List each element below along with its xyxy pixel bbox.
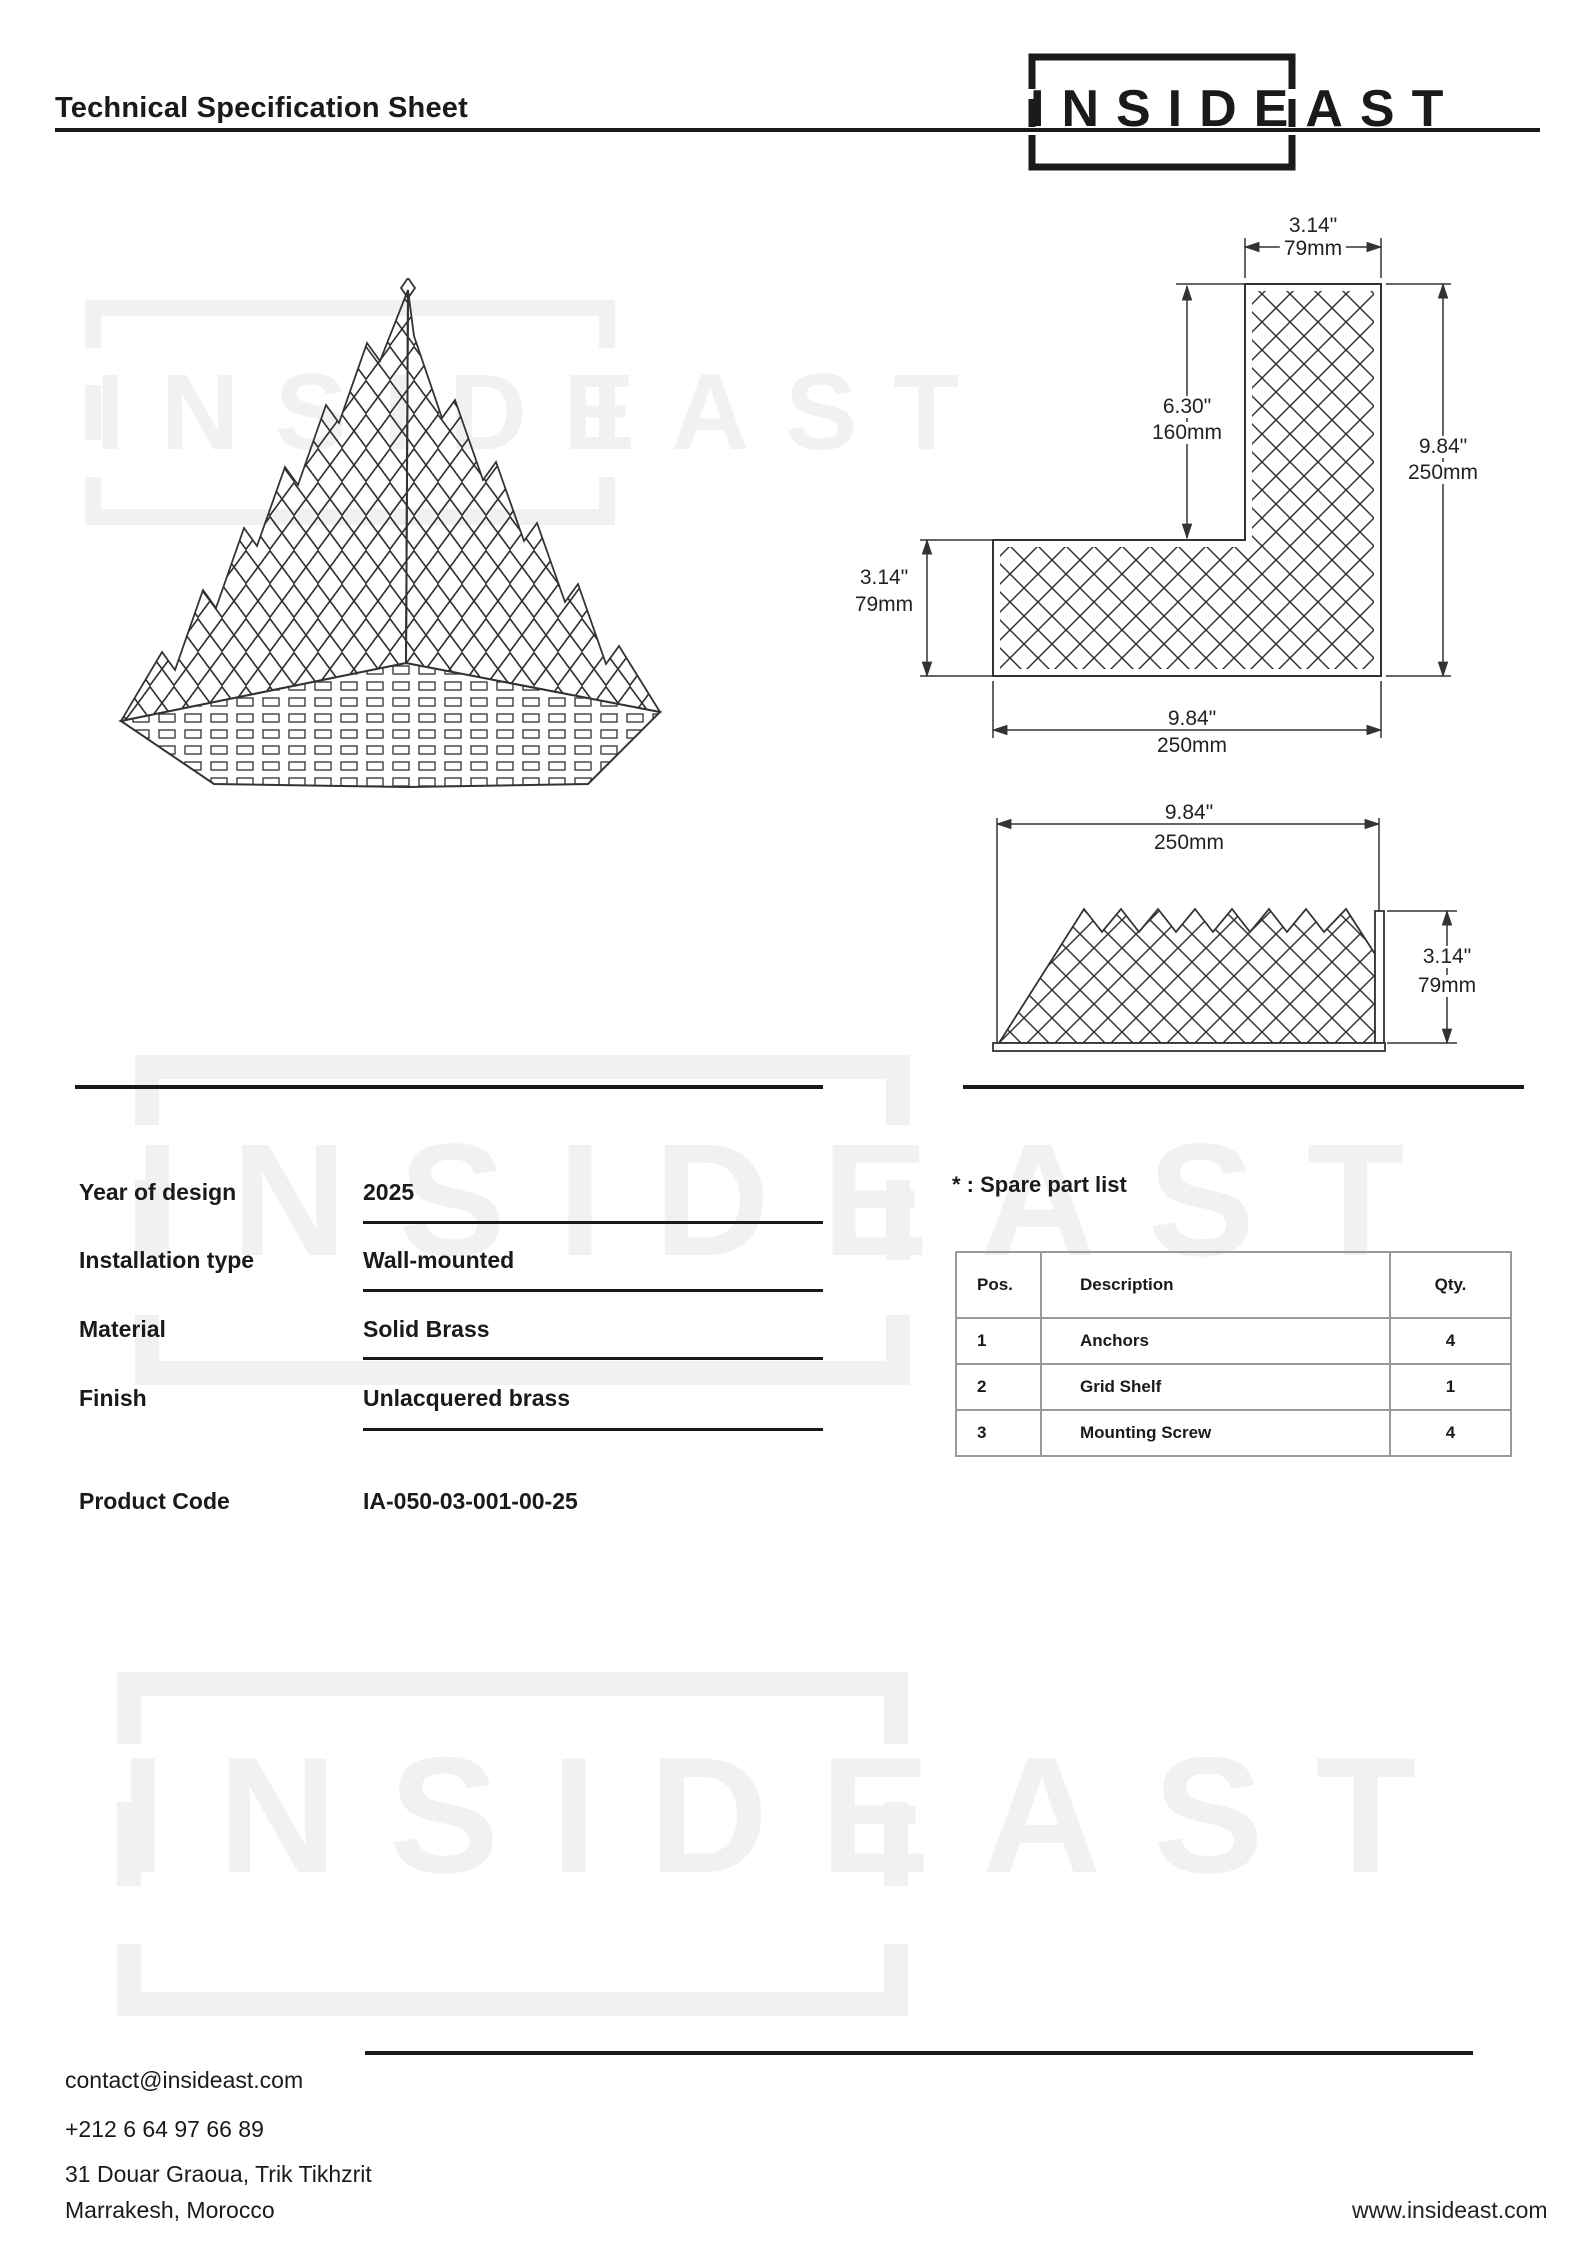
isometric-view-drawing — [78, 278, 688, 793]
spec-section-rule-left — [75, 1085, 823, 1089]
table-cell: Anchors — [1042, 1319, 1391, 1365]
col-header-desc: Description — [1042, 1253, 1391, 1319]
website-url: www.insideast.com — [1352, 2197, 1548, 2224]
dim-label-arm-width-in: 3.14" — [1289, 215, 1337, 237]
spec-label: Year of design — [79, 1179, 236, 1206]
dim-label-arm-height-in: 3.14" — [860, 567, 908, 589]
dim-label-front-width-in: 9.84" — [1165, 802, 1213, 824]
spare-parts-heading: * : Spare part list — [952, 1172, 1127, 1198]
address-line-2: Marrakesh, Morocco — [65, 2197, 275, 2224]
footer-rule — [365, 2051, 1473, 2055]
spec-section-rule-right — [963, 1085, 1524, 1089]
col-header-pos: Pos. — [957, 1253, 1042, 1319]
watermark-text: INSIDEAST — [120, 1733, 1468, 1898]
table-cell: 4 — [1391, 1319, 1510, 1365]
spec-label: Installation type — [79, 1247, 254, 1274]
spare-parts-table: Pos. Description Qty. 1 Anchors 4 2 Grid… — [955, 1251, 1512, 1457]
spec-value: 2025 — [363, 1179, 414, 1206]
dim-label-height-in: 9.84" — [1415, 436, 1471, 458]
dim-label-arm-width-mm: 79mm — [1280, 238, 1346, 260]
spec-value: Wall-mounted — [363, 1247, 514, 1274]
brand-wordmark: INSIDEAST — [1030, 83, 1460, 135]
spec-underline — [363, 1289, 823, 1292]
address-line-1: 31 Douar Graoua, Trik Tikhzrit — [65, 2161, 372, 2188]
product-code-label: Product Code — [79, 1488, 230, 1515]
table-cell: 2 — [957, 1365, 1042, 1411]
spec-label: Material — [79, 1316, 166, 1343]
table-cell: 1 — [957, 1319, 1042, 1365]
spec-underline — [363, 1221, 823, 1224]
spec-underline — [363, 1428, 823, 1431]
spec-label: Finish — [79, 1385, 147, 1412]
dim-label-arm-height-mm: 79mm — [855, 594, 913, 616]
table-cell: 4 — [1391, 1411, 1510, 1455]
dim-label-gap-in: 6.30" — [1159, 396, 1215, 418]
contact-phone: +212 6 64 97 66 89 — [65, 2116, 264, 2143]
dim-label-width-mm: 250mm — [1157, 735, 1227, 757]
col-header-qty: Qty. — [1391, 1253, 1510, 1319]
table-cell: 1 — [1391, 1365, 1510, 1411]
spec-sheet-page: INSIDEAST INSIDEAST INSIDEAST Technical … — [0, 0, 1588, 2247]
dim-label-height-mm: 250mm — [1404, 462, 1482, 484]
page-title: Technical Specification Sheet — [55, 92, 468, 125]
dim-label-front-height-mm: 79mm — [1414, 975, 1480, 997]
table-cell: Mounting Screw — [1042, 1411, 1391, 1455]
table-cell: Grid Shelf — [1042, 1365, 1391, 1411]
top-view-drawing — [870, 210, 1490, 770]
dim-label-gap-mm: 160mm — [1148, 422, 1226, 444]
product-code-value: IA-050-03-001-00-25 — [363, 1488, 578, 1515]
table-cell: 3 — [957, 1411, 1042, 1455]
spec-underline — [363, 1357, 823, 1360]
spec-value: Solid Brass — [363, 1316, 490, 1343]
contact-email: contact@insideast.com — [65, 2067, 303, 2094]
dim-label-front-width-mm: 250mm — [1154, 832, 1224, 854]
spec-value: Unlacquered brass — [363, 1385, 570, 1412]
dim-label-width-in: 9.84" — [1168, 708, 1216, 730]
dim-label-front-height-in: 3.14" — [1419, 946, 1475, 968]
